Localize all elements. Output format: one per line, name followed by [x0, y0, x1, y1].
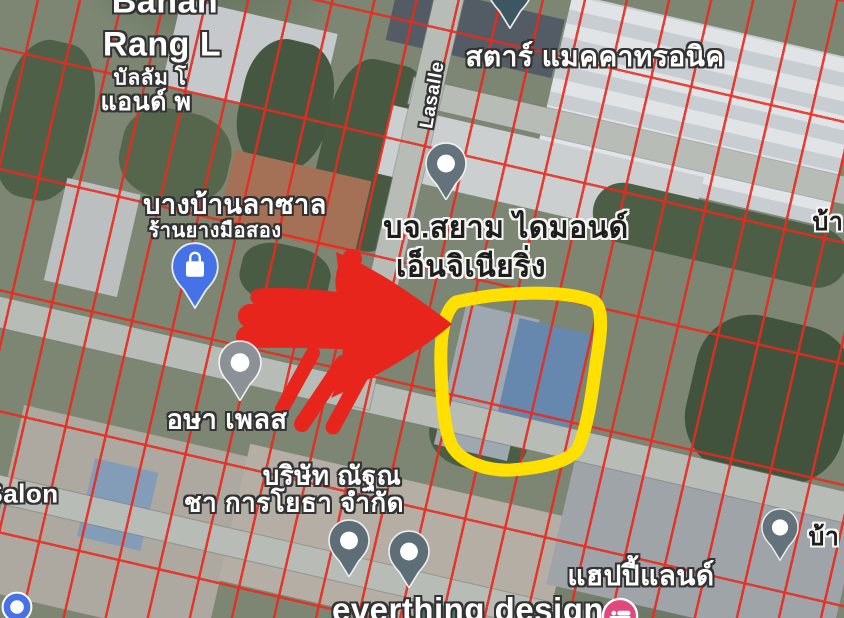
pin-south-west[interactable] [328, 519, 370, 583]
map-pins-layer [0, 0, 844, 618]
pin-lasalle-road[interactable] [425, 142, 467, 206]
hotel-pin[interactable] [601, 597, 639, 618]
store-pin[interactable] [171, 242, 219, 314]
satellite-map[interactable]: BananRang Lบัลลัม โแอนด์ พสตาร์ แมคคาทรอ… [0, 0, 844, 618]
pin-south-mid[interactable] [388, 530, 430, 594]
salon-pin[interactable] [1, 591, 33, 618]
pin-usa-place[interactable] [218, 340, 262, 407]
pin-east[interactable] [761, 508, 799, 566]
top-edge-pin[interactable] [487, 0, 533, 34]
